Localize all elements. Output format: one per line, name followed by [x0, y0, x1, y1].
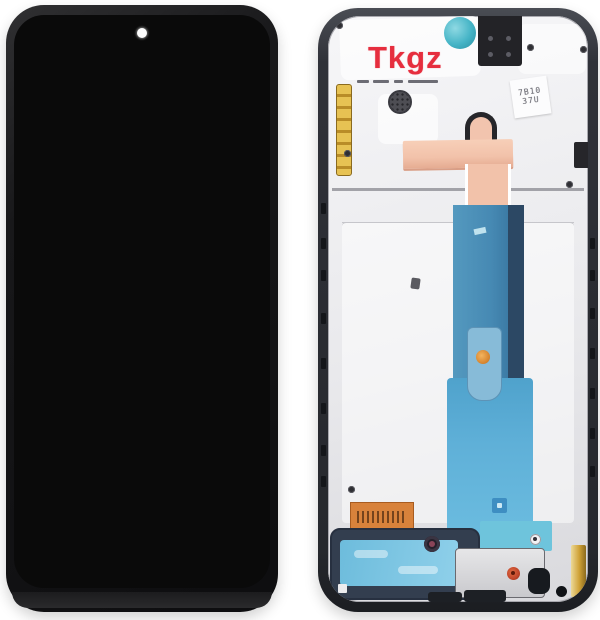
- punch-hole-camera-icon: [137, 28, 147, 38]
- frame-screw: [566, 181, 573, 188]
- frame-screw: [527, 44, 534, 51]
- front-camera-arch: [465, 112, 497, 142]
- mesh-highlight: [354, 550, 388, 558]
- rear-camera-module: [478, 16, 522, 66]
- frame-screw: [580, 46, 587, 53]
- camera-contact-dot: [506, 36, 511, 41]
- side-black-component: [574, 142, 588, 168]
- bottom-frame-block: [528, 568, 550, 594]
- flex-component-square: [492, 498, 507, 513]
- side-button-flex-cable: [336, 84, 352, 176]
- flex-cable-navy-edge: [506, 205, 524, 385]
- front-black-screen: [14, 15, 270, 588]
- back-plate: 7B10 37U: [328, 16, 588, 602]
- main-flex-cable-lower: [447, 378, 533, 544]
- bottom-frame-hole: [556, 586, 567, 597]
- antenna-notch-right: [590, 348, 595, 359]
- screw-boss: [530, 534, 541, 545]
- antenna-notch-left: [321, 313, 326, 324]
- vent-slot: [394, 80, 403, 83]
- antenna-notch-right: [590, 238, 595, 249]
- bottom-frame-tab: [464, 590, 506, 602]
- antenna-notch-left: [321, 270, 326, 281]
- frame-screw: [344, 150, 351, 157]
- antenna-gold-contact: [571, 545, 586, 597]
- front-bottom-bezel: [12, 592, 272, 608]
- phone-front-panel: [6, 5, 278, 612]
- antenna-notch-left: [321, 203, 326, 214]
- camera-contact-dot: [488, 52, 493, 57]
- gold-contact-pad: [476, 350, 490, 364]
- antenna-notch-left: [321, 476, 326, 487]
- product-photo-canvas: Tkgz 7B10 37U: [0, 0, 600, 620]
- antenna-notch-left: [321, 238, 326, 249]
- vent-slot: [357, 80, 369, 83]
- frame-divider-line: [332, 188, 584, 191]
- antenna-notch-right: [590, 270, 595, 281]
- antenna-notch-right: [590, 466, 595, 477]
- antenna-notch-right: [590, 428, 595, 439]
- phone-back-frame: 7B10 37U: [318, 8, 598, 612]
- camera-contact-dot: [488, 36, 493, 41]
- earpiece-speaker-grille: [388, 90, 412, 114]
- mesh-highlight: [398, 566, 438, 574]
- antenna-notch-right: [590, 388, 595, 399]
- bottom-frame-tab: [428, 592, 462, 602]
- camera-contact-dot: [506, 52, 511, 57]
- frame-screw: [336, 22, 343, 29]
- antenna-notch-left: [321, 445, 326, 456]
- red-screw: [507, 567, 520, 580]
- speaker-mesh: [340, 540, 458, 586]
- camera-lens-adhesive: [444, 17, 476, 49]
- antenna-notch-left: [321, 358, 326, 369]
- antenna-notch-left: [321, 403, 326, 414]
- frame-print-mark: [410, 277, 420, 289]
- watermark-text: Tkgz: [368, 40, 443, 76]
- vent-slot: [373, 80, 389, 83]
- speaker-corner-pad: [338, 584, 347, 593]
- speaker-screw: [424, 536, 440, 552]
- copper-flex-vertical: [465, 164, 511, 210]
- antenna-notch-right: [590, 308, 595, 319]
- vent-slot: [408, 80, 438, 83]
- frame-screw: [348, 486, 355, 493]
- bottom-cyan-flex: [480, 521, 552, 551]
- qr-code-sticker: 7B10 37U: [510, 76, 552, 119]
- flex-connector-tab: [467, 327, 502, 401]
